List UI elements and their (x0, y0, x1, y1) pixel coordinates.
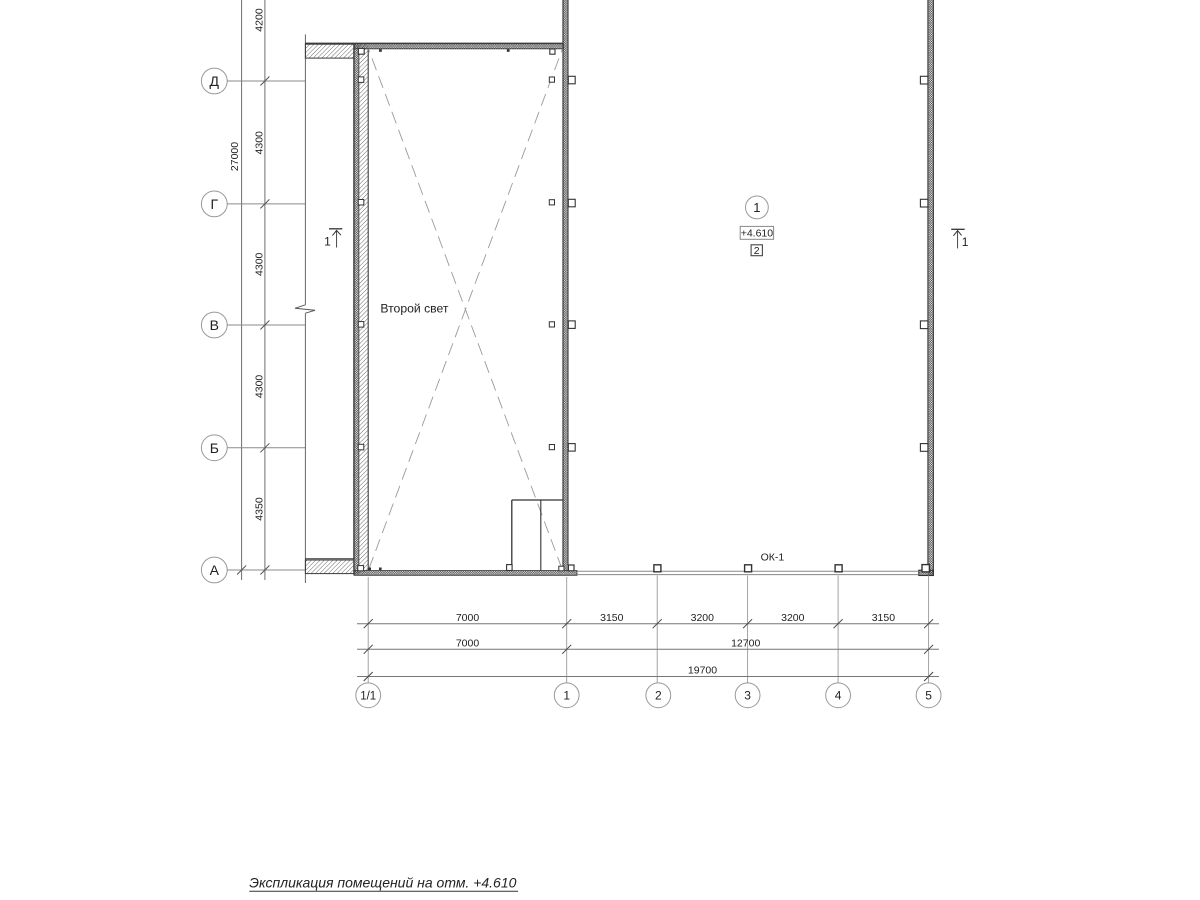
svg-text:1: 1 (563, 689, 570, 703)
svg-text:4350: 4350 (254, 497, 266, 521)
svg-text:2: 2 (754, 245, 760, 257)
svg-text:4: 4 (835, 689, 842, 703)
svg-text:4300: 4300 (254, 375, 266, 399)
svg-text:1: 1 (324, 234, 331, 248)
svg-text:3: 3 (744, 689, 751, 703)
svg-text:А: А (210, 562, 220, 578)
svg-text:2: 2 (655, 689, 662, 703)
svg-text:Б: Б (210, 440, 219, 456)
svg-text:4200: 4200 (254, 8, 266, 32)
svg-text:19700: 19700 (688, 665, 717, 677)
svg-text:Г: Г (211, 196, 219, 212)
svg-text:Второй свет: Второй свет (380, 302, 449, 316)
svg-text:В: В (210, 317, 219, 333)
svg-text:1: 1 (753, 200, 760, 215)
svg-text:27000: 27000 (229, 142, 241, 171)
svg-text:ОК-1: ОК-1 (761, 552, 785, 564)
svg-text:4300: 4300 (254, 252, 266, 276)
svg-text:4300: 4300 (254, 131, 266, 155)
svg-text:Экспликация помещений на отм.: Экспликация помещений на отм. +4.610 (249, 875, 516, 891)
svg-text:+4.610: +4.610 (741, 228, 774, 240)
svg-text:1/1: 1/1 (360, 691, 376, 703)
svg-text:5: 5 (925, 689, 932, 703)
svg-text:Д: Д (210, 73, 220, 89)
svg-text:3150: 3150 (600, 612, 624, 624)
svg-text:3150: 3150 (872, 612, 896, 624)
svg-text:3200: 3200 (781, 612, 805, 624)
svg-text:7000: 7000 (456, 637, 480, 649)
svg-text:7000: 7000 (456, 612, 480, 624)
svg-text:12700: 12700 (731, 637, 760, 649)
svg-text:1: 1 (962, 235, 969, 249)
svg-text:3200: 3200 (691, 612, 715, 624)
